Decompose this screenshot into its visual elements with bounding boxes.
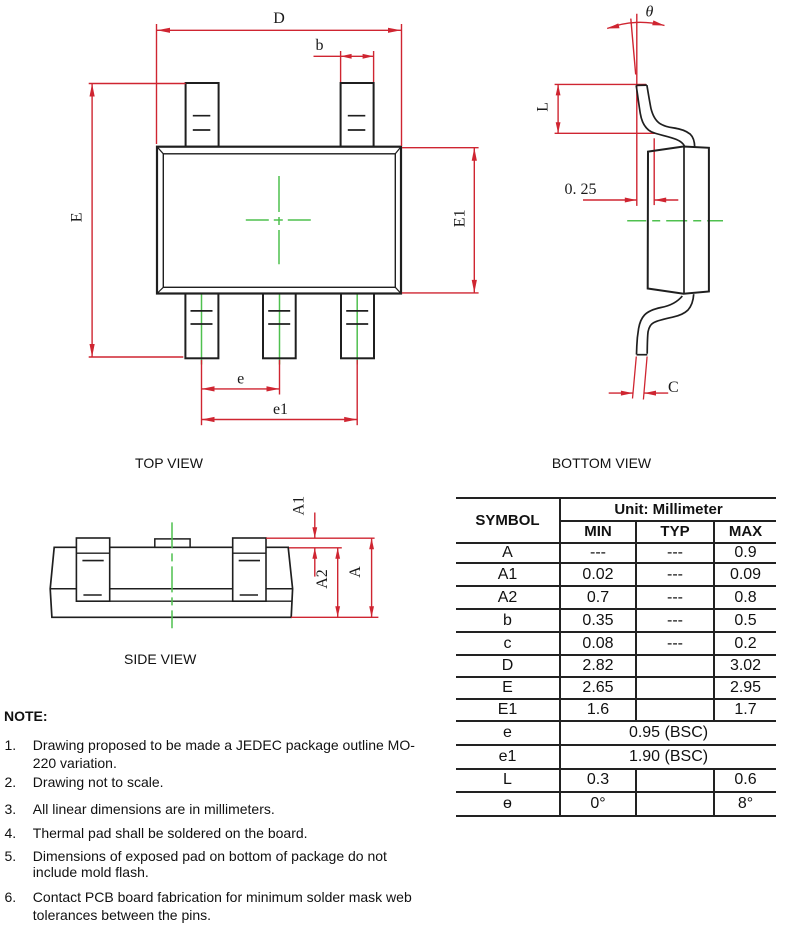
svg-text:θ: θ (645, 4, 653, 21)
svg-text:E1: E1 (452, 209, 469, 227)
svg-text:E: E (68, 212, 85, 222)
svg-text:A2: A2 (314, 569, 331, 589)
svg-text:b: b (316, 37, 324, 54)
svg-text:0. 25: 0. 25 (565, 181, 597, 198)
svg-text:L: L (535, 102, 552, 112)
svg-text:e1: e1 (273, 401, 288, 418)
svg-text:A1: A1 (291, 496, 308, 516)
svg-text:C: C (668, 379, 679, 396)
svg-text:A: A (347, 566, 364, 578)
svg-text:D: D (273, 10, 285, 27)
svg-text:e: e (237, 371, 244, 388)
